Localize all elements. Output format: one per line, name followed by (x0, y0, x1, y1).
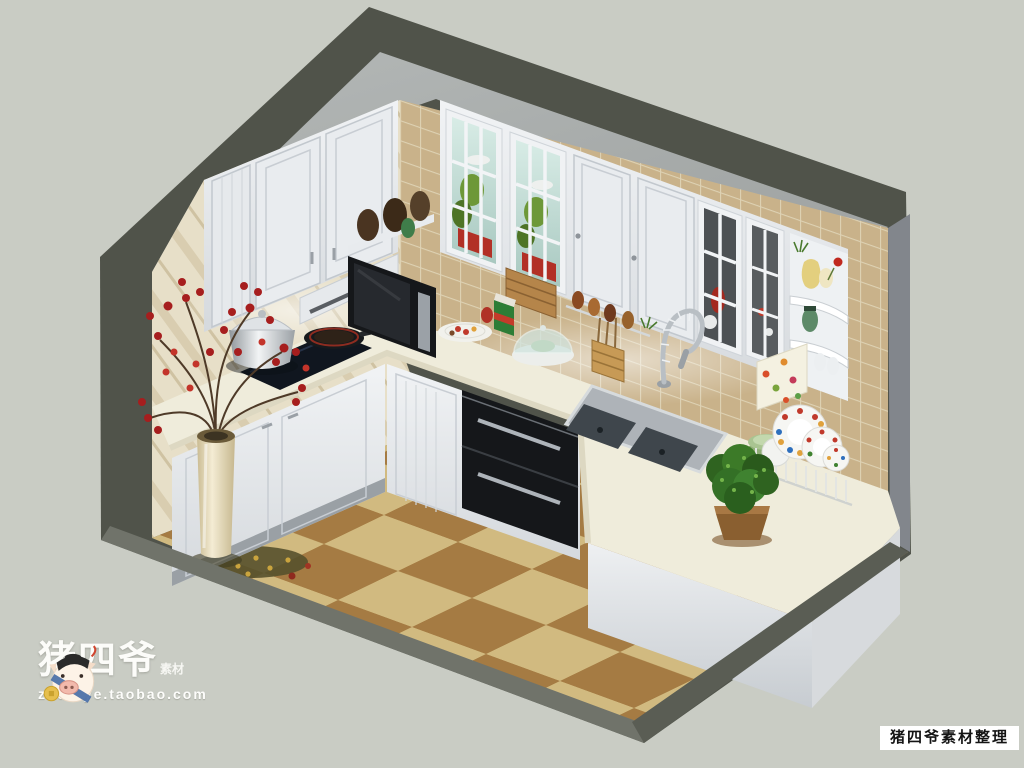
kitchen-render: 猪四爷素材 zhusiye.taobao.com 猪四爷素材整理 (0, 0, 1024, 768)
brand-suffix-text: 素材 (160, 662, 184, 676)
red-flower (834, 258, 843, 267)
watermark-logo: 猪四爷素材 zhusiye.taobao.com (38, 642, 258, 702)
juice-carton (494, 293, 516, 336)
patterned-plate (823, 445, 849, 471)
cabinet-knob (575, 233, 580, 238)
glass-cabinet-door (698, 200, 742, 356)
green-canister (802, 308, 818, 332)
yellow-vase (802, 259, 821, 289)
glass-cabinet-door (446, 109, 502, 272)
credit-badge: 猪四爷素材整理 (880, 726, 1019, 750)
pig-mascot-icon (38, 642, 104, 708)
dark-jar (357, 209, 379, 241)
glass-cabinet-door (510, 132, 566, 295)
cabinet-knob (631, 255, 636, 260)
cream-vase (819, 268, 833, 288)
white-jar (827, 357, 839, 375)
dark-jar (410, 191, 430, 221)
green-jar (401, 218, 415, 238)
glass-cabinet-door (746, 217, 784, 369)
white-jar (814, 353, 826, 371)
